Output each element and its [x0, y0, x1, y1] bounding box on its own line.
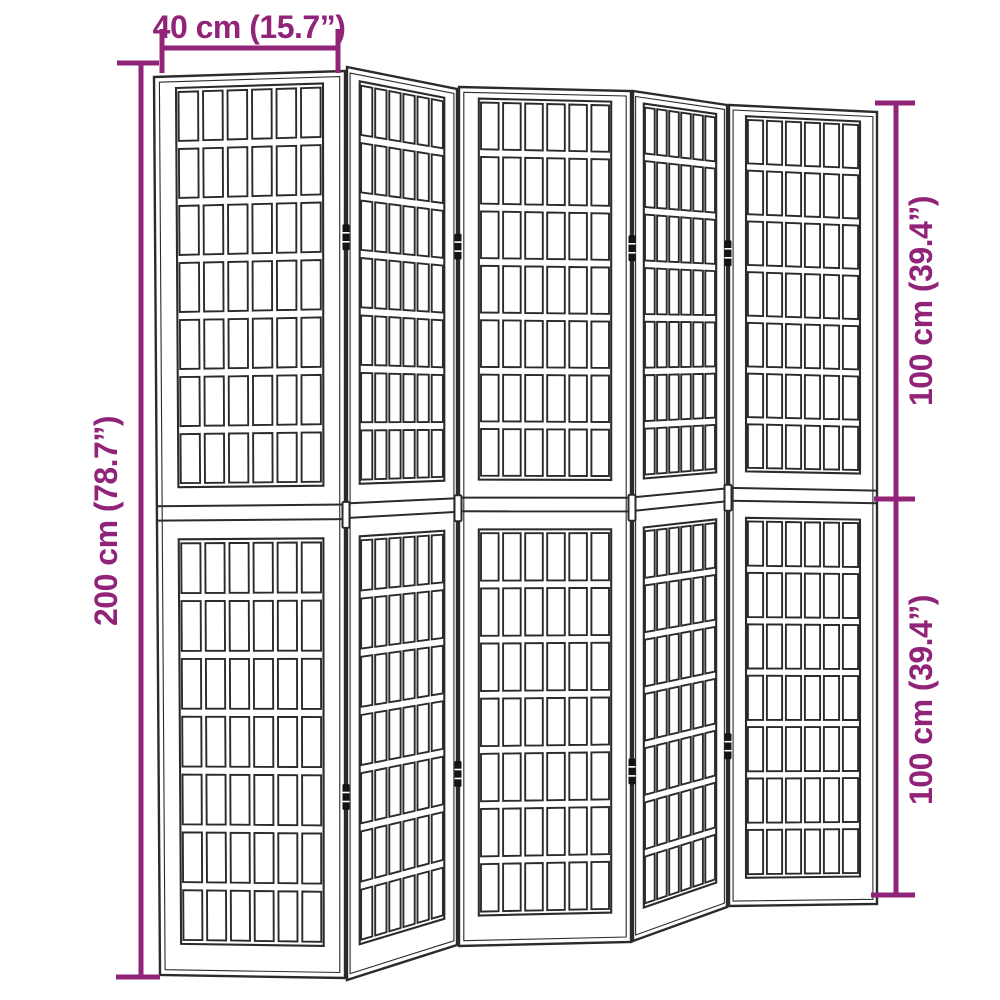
section-height-dimensions: 100 cm (39.4”) 100 cm (39.4”): [871, 103, 939, 895]
lower-section-dimension-label: 100 cm (39.4”): [903, 595, 939, 805]
folding-screen-illustration: [154, 67, 877, 980]
total-height-dimension: 200 cm (78.7”): [88, 63, 160, 977]
width-dimension-label: 40 cm (15.7”): [153, 9, 346, 45]
hinge-icon: [455, 495, 462, 521]
hinge-icon: [725, 485, 732, 511]
diagram-canvas: 40 cm (15.7”) 200 cm (78.7”) 100 cm (39.…: [0, 0, 1000, 1000]
hinge-icon: [455, 234, 462, 260]
hinge-icon: [725, 240, 732, 266]
hinge-icon: [725, 733, 732, 759]
screen-panel-5: [729, 105, 877, 906]
screen-panel-1: [154, 71, 345, 978]
screen-panel-4: [633, 91, 727, 941]
screen-panel-2: [347, 67, 457, 980]
hinge-icon: [629, 235, 636, 261]
hinge-icon: [343, 502, 350, 528]
width-dimension: 40 cm (15.7”): [153, 9, 346, 73]
hinge-icon: [629, 758, 636, 784]
total-height-dimension-label: 200 cm (78.7”): [88, 416, 124, 626]
hinge-icon: [629, 495, 636, 521]
hinge-icon: [343, 224, 350, 250]
screen-panel-3: [459, 87, 631, 946]
upper-section-dimension-label: 100 cm (39.4”): [903, 196, 939, 406]
dimension-diagram: 40 cm (15.7”) 200 cm (78.7”) 100 cm (39.…: [0, 0, 1000, 1000]
hinge-icon: [455, 761, 462, 787]
hinge-icon: [343, 784, 350, 810]
